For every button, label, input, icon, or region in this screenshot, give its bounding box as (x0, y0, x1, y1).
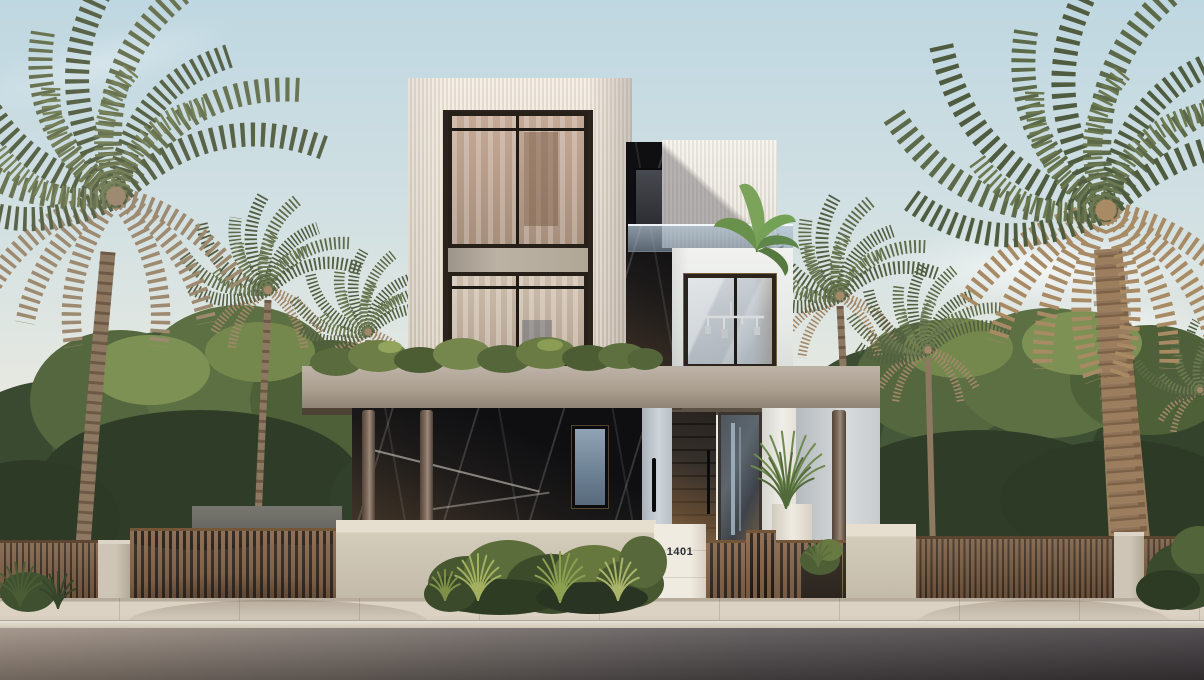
banana-plant (714, 184, 799, 276)
street-scene: 1401 (0, 0, 1204, 680)
corner-bush-right (1136, 526, 1204, 610)
foreground-vegetation (0, 0, 1204, 680)
pendant-chandelier (700, 302, 764, 338)
canopy-roof-shrubs (310, 337, 663, 376)
